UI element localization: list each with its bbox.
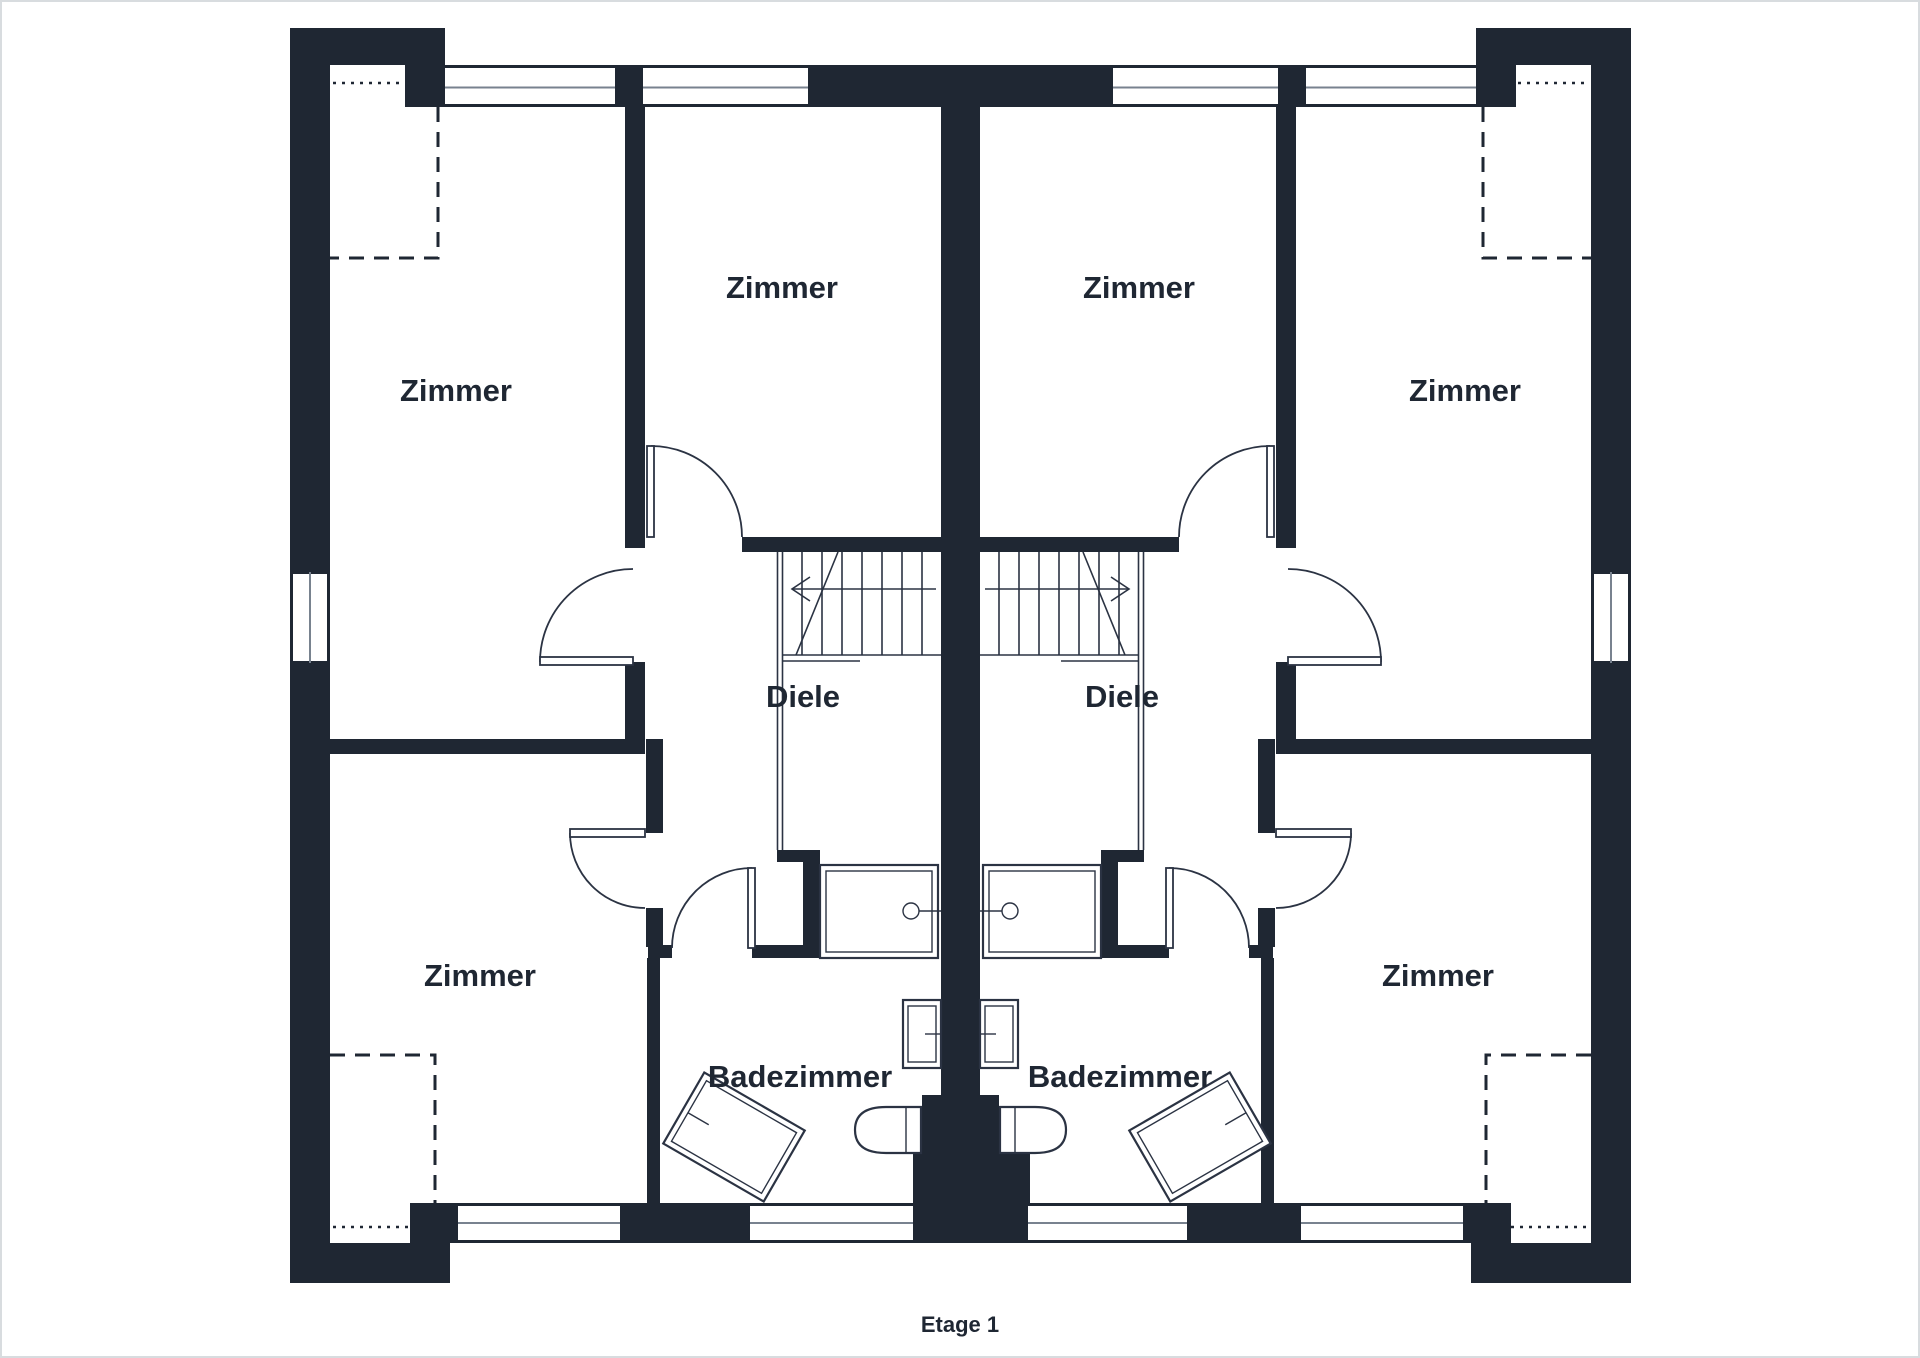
wall-segment (290, 65, 330, 107)
wall-segment (1591, 663, 1631, 1243)
wall-segment (290, 107, 330, 572)
stair-direction-arrow (985, 577, 1129, 601)
floor-plan-canvas: Zimmer Zimmer Zimmer Zimmer Diele Diele … (0, 0, 1920, 1358)
wall-segment (1591, 107, 1631, 572)
room-label-zimmer-mid-left: Zimmer (726, 270, 838, 305)
room-label-zimmer-upper-left: Zimmer (400, 373, 512, 408)
wall-segment (625, 107, 645, 548)
wall-segment (1591, 65, 1631, 107)
wall-segment (1296, 739, 1591, 754)
wall-segment (1249, 945, 1273, 958)
shower-icon (980, 865, 1101, 958)
window (643, 65, 808, 107)
wall-segment (1101, 850, 1118, 958)
window (445, 65, 615, 107)
window (290, 572, 330, 663)
wall-segment (646, 739, 663, 833)
toilet-icon (1000, 1107, 1066, 1153)
wall-segment (1278, 65, 1306, 107)
room-label-diele-right: Diele (1085, 679, 1159, 714)
wall-segment (615, 65, 643, 107)
room-label-bad-left: Badezimmer (708, 1059, 892, 1094)
door-zimmer-upper-right (1288, 569, 1381, 665)
wall-segment (648, 945, 672, 958)
floorplan-page: Zimmer Zimmer Zimmer Zimmer Diele Diele … (0, 0, 1920, 1358)
corner-block-top-left (290, 28, 445, 65)
wall-segment (742, 537, 941, 552)
window (458, 1203, 620, 1243)
wall-segment (1476, 65, 1516, 107)
wall-segment (922, 1095, 941, 1203)
door-zimmer-mid-right (1179, 446, 1274, 537)
corner-block-top-right (1476, 28, 1631, 65)
walls (290, 28, 1631, 1283)
roof-slope-dashed (330, 1055, 435, 1227)
wall-segment (803, 850, 820, 958)
wall-segment (620, 1203, 750, 1243)
window (750, 1203, 913, 1243)
wall-segment (1276, 662, 1296, 754)
roof-slope-dashed (330, 107, 438, 258)
window (1301, 1203, 1463, 1243)
window (1306, 65, 1476, 107)
door-zimmer-mid-left (647, 446, 742, 537)
wall-segment (646, 908, 663, 947)
wall-segment (625, 662, 645, 754)
window (1113, 65, 1278, 107)
bathroom-fixtures-left (663, 865, 941, 1202)
wall-segment (1261, 958, 1274, 1203)
wall-segment (980, 537, 1179, 552)
wall-segment (1258, 908, 1275, 947)
window (1028, 1203, 1187, 1243)
shower-icon (820, 865, 941, 958)
window (1591, 572, 1631, 663)
party-wall (941, 107, 980, 1203)
door-zimmer-upper-left (540, 569, 633, 665)
washbasin-icon (903, 1000, 941, 1068)
wall-segment (1187, 1203, 1301, 1243)
corner-block-bottom-left (290, 1243, 450, 1283)
wall-segment (1101, 850, 1144, 862)
room-label-zimmer-lower-right: Zimmer (1382, 958, 1494, 993)
wall-segment (290, 663, 330, 1243)
toilet-icon (855, 1107, 921, 1153)
washbasin-icon (980, 1000, 1018, 1068)
room-label-zimmer-mid-right: Zimmer (1083, 270, 1195, 305)
door-bath-right (1166, 868, 1249, 948)
floor-title: Etage 1 (921, 1312, 999, 1337)
stair-direction-arrow (792, 577, 936, 601)
door-zimmer-lower-left (570, 829, 645, 908)
wall-segment (777, 850, 820, 862)
wall-segment (647, 958, 660, 1203)
wall-segment (1258, 739, 1275, 833)
wall-segment (405, 65, 445, 107)
bathroom-fixtures-right (980, 865, 1271, 1202)
door-bath-left (672, 868, 755, 948)
wall-segment-top-center (808, 65, 1113, 107)
room-label-diele-left: Diele (766, 679, 840, 714)
roof-slope-dashed (1486, 1055, 1591, 1227)
door-zimmer-lower-right (1276, 829, 1351, 908)
wall-segment (1276, 107, 1296, 548)
room-label-zimmer-lower-left: Zimmer (424, 958, 536, 993)
corner-block-bottom-right (1471, 1243, 1631, 1283)
wall-segment (980, 1095, 999, 1203)
roof-slope-dashed (1483, 107, 1591, 258)
room-label-zimmer-upper-right: Zimmer (1409, 373, 1521, 408)
room-label-bad-right: Badezimmer (1028, 1059, 1212, 1094)
wall-segment (330, 739, 625, 754)
